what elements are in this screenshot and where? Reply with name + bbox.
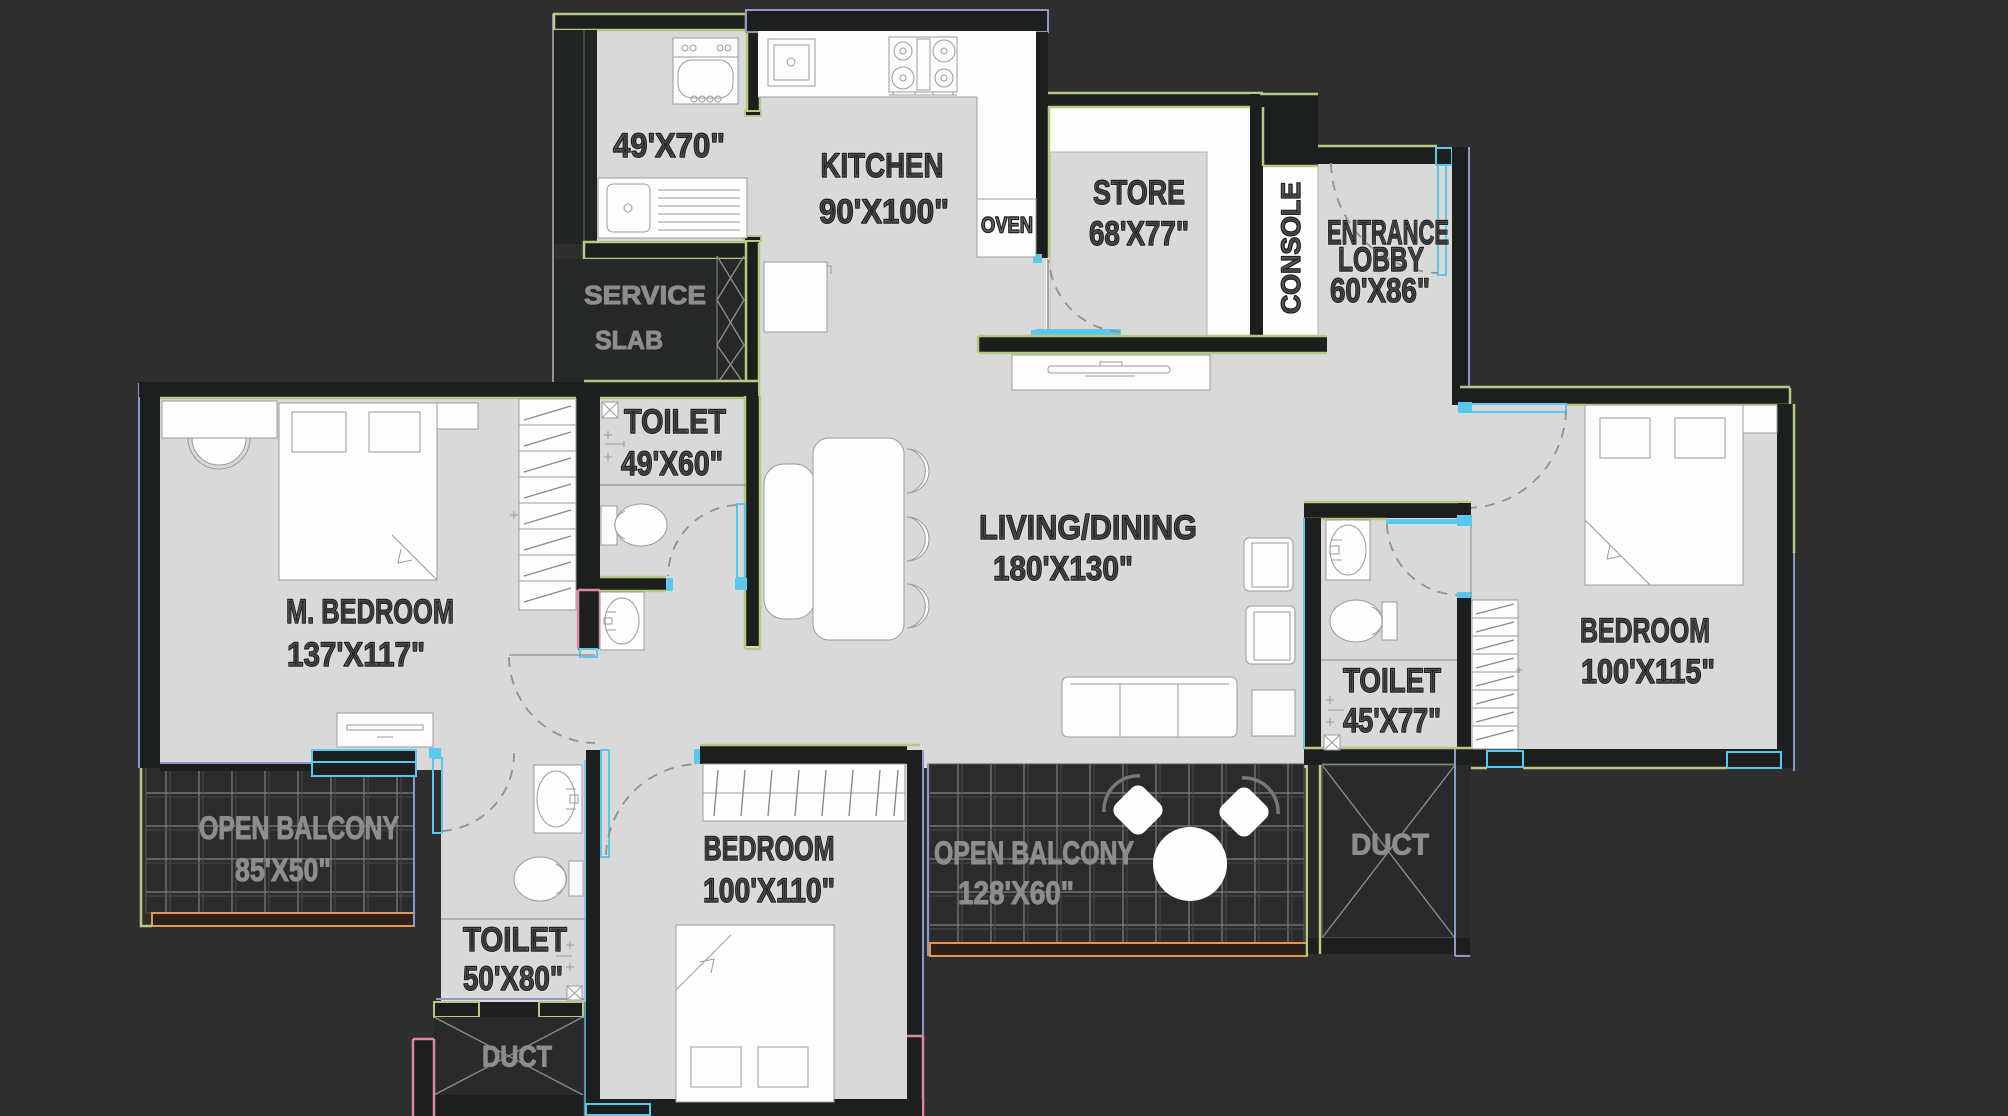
svg-text:128'X60": 128'X60" [958, 875, 1074, 911]
svg-text:SERVICE: SERVICE [584, 280, 706, 310]
svg-text:45'X77": 45'X77" [1343, 702, 1441, 740]
svg-text:LIVING/DINING: LIVING/DINING [979, 509, 1197, 547]
svg-text:137'X117": 137'X117" [287, 636, 425, 674]
svg-text:DUCT: DUCT [482, 1041, 552, 1074]
svg-text:60'X86": 60'X86" [1330, 272, 1430, 310]
svg-text:180'X130": 180'X130" [993, 550, 1133, 588]
svg-text:49'X70": 49'X70" [613, 127, 725, 165]
svg-text:TOILET: TOILET [624, 403, 726, 441]
svg-text:100'X110": 100'X110" [703, 872, 835, 910]
svg-text:CONSOLE: CONSOLE [1276, 182, 1306, 314]
svg-text:BEDROOM: BEDROOM [704, 830, 835, 868]
svg-text:DUCT: DUCT [1351, 829, 1429, 862]
svg-text:90'X100": 90'X100" [819, 193, 949, 231]
svg-text:KITCHEN: KITCHEN [821, 147, 944, 185]
svg-text:OPEN BALCONY: OPEN BALCONY [199, 810, 399, 846]
svg-text:STORE: STORE [1093, 174, 1185, 212]
svg-text:49'X60": 49'X60" [621, 445, 723, 483]
svg-text:OVEN: OVEN [981, 213, 1033, 238]
svg-text:100'X115": 100'X115" [1581, 653, 1715, 691]
svg-text:68'X77": 68'X77" [1089, 215, 1189, 253]
svg-text:BEDROOM: BEDROOM [1580, 612, 1710, 650]
svg-text:TOILET: TOILET [463, 921, 567, 959]
svg-text:M. BEDROOM: M. BEDROOM [286, 593, 454, 631]
svg-text:SLAB: SLAB [595, 325, 663, 355]
svg-text:85'X50": 85'X50" [235, 852, 331, 888]
svg-text:TOILET: TOILET [1343, 662, 1441, 700]
svg-text:50'X80": 50'X80" [463, 960, 563, 998]
svg-text:OPEN BALCONY: OPEN BALCONY [934, 835, 1134, 871]
